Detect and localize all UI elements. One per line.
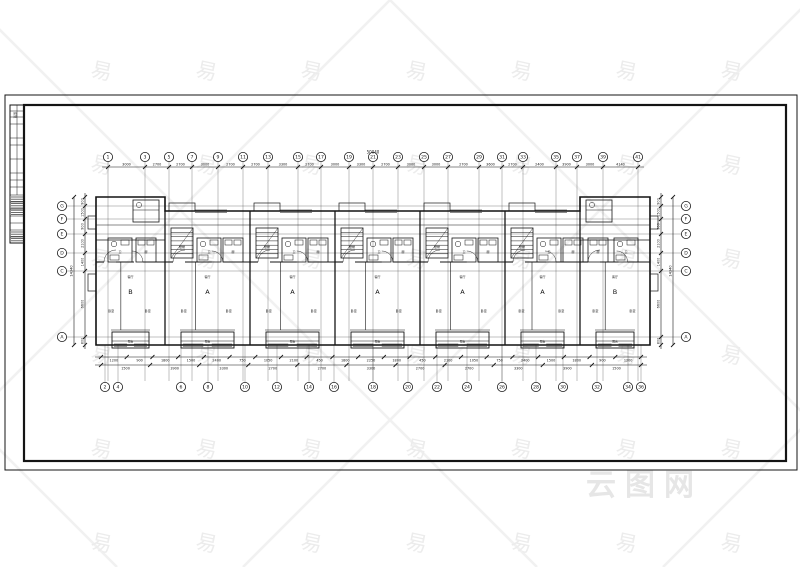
svg-text:3900: 3900	[562, 163, 571, 167]
svg-text:客厅: 客厅	[374, 274, 380, 279]
svg-text:2700: 2700	[318, 366, 327, 370]
svg-text:3000: 3000	[586, 163, 595, 167]
svg-text:易: 易	[719, 529, 745, 557]
svg-text:2100: 2100	[290, 358, 299, 362]
svg-text:易: 易	[299, 529, 325, 557]
title-block: 建施	[10, 105, 24, 243]
svg-text:2400: 2400	[521, 358, 530, 362]
stair-icon	[256, 228, 278, 258]
svg-text:卫: 卫	[624, 250, 627, 254]
svg-text:1500: 1500	[187, 358, 196, 362]
svg-text:2700: 2700	[251, 163, 260, 167]
unit-1: 卫厨客厅卧室卧室阳台B	[88, 197, 165, 348]
svg-text:厨: 厨	[596, 249, 599, 254]
svg-text:2700: 2700	[268, 366, 277, 370]
svg-text:2700: 2700	[176, 163, 185, 167]
svg-text:卧室: 卧室	[629, 308, 635, 313]
svg-text:卧室: 卧室	[481, 308, 487, 313]
axis-grid: 1357911131517192123252729313335373941246…	[57, 152, 690, 391]
svg-text:卧室: 卧室	[145, 308, 151, 313]
svg-text:客厅: 客厅	[612, 274, 618, 279]
svg-text:卧室: 卧室	[311, 308, 317, 313]
svg-text:卫: 卫	[292, 250, 295, 254]
bath-fixtures-icon	[108, 238, 132, 262]
svg-text:阳台: 阳台	[205, 340, 211, 344]
svg-text:1500: 1500	[657, 208, 661, 217]
svg-text:3300: 3300	[279, 163, 288, 167]
svg-text:A: A	[290, 288, 295, 296]
svg-text:阳台: 阳台	[612, 340, 618, 344]
svg-text:易: 易	[194, 245, 220, 273]
svg-text:1500: 1500	[547, 358, 556, 362]
room-labels: 楼梯卫厨客厅卧室卧室阳台A	[518, 244, 574, 344]
watermark-glyph-grid: 易易易易易易易易易易易易易易易易易易易易易易易易易易易易易易易易易易易易易易易易…	[89, 57, 745, 557]
svg-text:900: 900	[599, 358, 605, 362]
svg-text:6600: 6600	[657, 300, 661, 309]
room-labels: 楼梯卫厨客厅卧室卧室阳台A	[179, 244, 235, 344]
kitchen-icon	[478, 238, 498, 262]
stair-icon	[171, 228, 193, 258]
svg-text:易: 易	[509, 435, 535, 463]
svg-text:易: 易	[614, 529, 640, 557]
svg-text:易: 易	[719, 435, 745, 463]
svg-text:1800: 1800	[341, 358, 350, 362]
svg-text:卧室: 卧室	[558, 308, 564, 313]
svg-text:A: A	[205, 288, 210, 296]
svg-text:卧室: 卧室	[266, 308, 272, 313]
watermark-layer: 易易易易易易易易易易易易易易易易易易易易易易易易易易易易易易易易易易易易易易易易…	[0, 0, 800, 567]
svg-text:易: 易	[89, 245, 115, 273]
svg-text:1400: 1400	[657, 258, 661, 267]
svg-text:厨: 厨	[486, 249, 489, 254]
svg-text:2100: 2100	[81, 239, 85, 248]
svg-text:450: 450	[419, 358, 425, 362]
svg-text:卧室: 卧室	[181, 308, 187, 313]
svg-text:卧室: 卧室	[436, 308, 442, 313]
svg-text:4140: 4140	[616, 163, 625, 167]
stair-icon	[511, 228, 533, 258]
svg-text:易: 易	[719, 245, 745, 273]
svg-text:卫: 卫	[118, 250, 121, 254]
svg-text:3300: 3300	[357, 163, 366, 167]
diagonal-watermark	[0, 0, 800, 567]
svg-text:楼梯: 楼梯	[519, 244, 525, 249]
svg-text:2700: 2700	[305, 163, 314, 167]
svg-text:楼梯: 楼梯	[264, 244, 270, 249]
svg-text:客厅: 客厅	[539, 274, 545, 279]
svg-text:易: 易	[89, 57, 115, 85]
svg-text:易: 易	[299, 435, 325, 463]
svg-text:易: 易	[614, 435, 640, 463]
svg-text:1800: 1800	[161, 358, 170, 362]
svg-text:2700: 2700	[381, 163, 390, 167]
svg-text:3000: 3000	[331, 163, 340, 167]
svg-text:客厅: 客厅	[127, 274, 133, 279]
svg-text:易: 易	[719, 151, 745, 179]
svg-text:易: 易	[194, 435, 220, 463]
room-labels: 卫厨客厅卧室卧室阳台B	[108, 249, 151, 344]
svg-text:卧室: 卧室	[351, 308, 357, 313]
svg-text:易: 易	[614, 57, 640, 85]
svg-text:3900: 3900	[563, 366, 572, 370]
svg-text:阳台: 阳台	[540, 340, 546, 344]
svg-text:900: 900	[81, 223, 85, 229]
svg-text:1500: 1500	[612, 366, 621, 370]
svg-text:A: A	[375, 288, 380, 296]
svg-text:客厅: 客厅	[204, 274, 210, 279]
svg-text:卫: 卫	[462, 250, 465, 254]
svg-text:750: 750	[239, 358, 245, 362]
svg-text:易: 易	[194, 57, 220, 85]
svg-text:易: 易	[719, 341, 745, 369]
bath-fixtures-icon	[537, 238, 561, 262]
svg-text:2700: 2700	[416, 366, 425, 370]
svg-text:易: 易	[89, 435, 115, 463]
bath-fixtures-icon	[282, 238, 306, 262]
svg-text:1400: 1400	[81, 258, 85, 267]
svg-text:易: 易	[614, 245, 640, 273]
bath-fixtures-icon	[452, 238, 476, 262]
svg-text:1500: 1500	[121, 366, 130, 370]
svg-text:3300: 3300	[514, 366, 523, 370]
svg-text:2700: 2700	[153, 163, 162, 167]
svg-text:3300: 3300	[219, 366, 228, 370]
svg-text:3000: 3000	[407, 163, 416, 167]
svg-text:1800: 1800	[572, 358, 581, 362]
svg-text:易: 易	[194, 529, 220, 557]
svg-text:900: 900	[657, 198, 661, 204]
svg-text:易: 易	[509, 57, 535, 85]
svg-text:2700: 2700	[459, 163, 468, 167]
svg-text:卫: 卫	[207, 250, 210, 254]
svg-text:易: 易	[299, 245, 325, 273]
svg-text:B: B	[128, 288, 132, 296]
room-labels: 卫厨客厅卧室卧室阳台B	[592, 249, 635, 344]
svg-text:2700: 2700	[508, 163, 517, 167]
svg-text:2100: 2100	[657, 239, 661, 248]
svg-text:客厅: 客厅	[459, 274, 465, 279]
kitchen-icon	[223, 238, 243, 262]
kitchen-icon	[308, 238, 328, 262]
cad-canvas: 云图网 易易易易易易易易易易易易易易易易易易易易易易易易易易易易易易易易易易易易…	[0, 0, 800, 567]
svg-text:1800: 1800	[392, 358, 401, 362]
svg-text:卧室: 卧室	[518, 308, 524, 313]
svg-text:3000: 3000	[201, 163, 210, 167]
svg-text:14340: 14340	[70, 265, 74, 277]
svg-text:卫: 卫	[377, 250, 380, 254]
kitchen-icon	[393, 238, 413, 262]
svg-text:A: A	[460, 288, 465, 296]
svg-text:易: 易	[404, 435, 430, 463]
svg-text:2400: 2400	[535, 163, 544, 167]
svg-text:阳台: 阳台	[290, 340, 296, 344]
svg-text:B: B	[613, 288, 617, 296]
svg-text:厨: 厨	[571, 249, 574, 254]
svg-text:厨: 厨	[231, 249, 234, 254]
svg-text:1050: 1050	[470, 358, 479, 362]
svg-text:卧室: 卧室	[396, 308, 402, 313]
svg-text:3000: 3000	[432, 163, 441, 167]
svg-text:900: 900	[81, 198, 85, 204]
svg-text:2700: 2700	[465, 366, 474, 370]
svg-text:楼梯: 楼梯	[179, 244, 185, 249]
bath-fixtures-icon	[614, 238, 638, 262]
bath-fixtures-icon	[367, 238, 391, 262]
svg-text:1500: 1500	[81, 208, 85, 217]
svg-text:易: 易	[404, 529, 430, 557]
svg-text:2400: 2400	[212, 358, 221, 362]
svg-text:2250: 2250	[367, 358, 376, 362]
svg-text:客厅: 客厅	[289, 274, 295, 279]
room-labels: 楼梯卫厨客厅卧室卧室阳台A	[264, 244, 320, 344]
floor-plan-drawing: 易易易易易易易易易易易易易易易易易易易易易易易易易易易易易易易易易易易易易易易易…	[0, 0, 800, 567]
svg-text:楼梯: 楼梯	[434, 244, 440, 249]
svg-text:1200: 1200	[110, 358, 119, 362]
stair-icon	[426, 228, 448, 258]
svg-text:阳台: 阳台	[128, 340, 134, 344]
svg-text:阳台: 阳台	[460, 340, 466, 344]
svg-text:A: A	[540, 288, 545, 296]
svg-text:厨: 厨	[401, 249, 404, 254]
svg-text:450: 450	[316, 358, 322, 362]
drawing-frame	[5, 95, 797, 470]
svg-text:卧室: 卧室	[108, 308, 114, 313]
svg-text:3300: 3300	[367, 366, 376, 370]
bath-fixtures-icon	[197, 238, 221, 262]
svg-text:楼梯: 楼梯	[349, 244, 355, 249]
svg-text:14340: 14340	[669, 265, 673, 277]
svg-text:900: 900	[136, 358, 142, 362]
svg-text:卧室: 卧室	[226, 308, 232, 313]
svg-text:卧室: 卧室	[592, 308, 598, 313]
svg-text:3000: 3000	[122, 163, 131, 167]
svg-text:易: 易	[404, 57, 430, 85]
svg-text:阳台: 阳台	[375, 340, 381, 344]
svg-text:3600: 3600	[486, 163, 495, 167]
room-labels: 楼梯卫厨客厅卧室卧室阳台A	[349, 244, 405, 344]
svg-text:3900: 3900	[170, 366, 179, 370]
svg-text:厨: 厨	[316, 249, 319, 254]
stair-icon	[341, 228, 363, 258]
svg-text:易: 易	[404, 245, 430, 273]
